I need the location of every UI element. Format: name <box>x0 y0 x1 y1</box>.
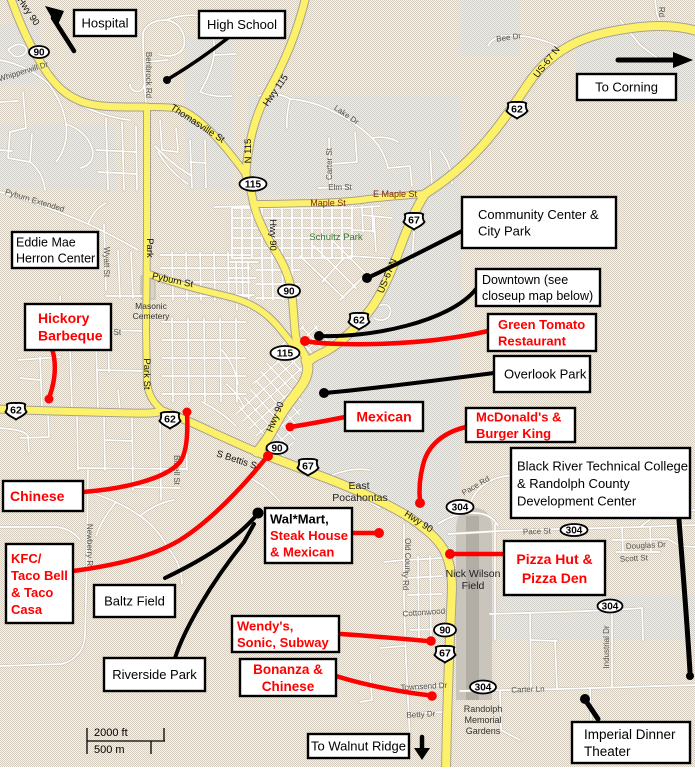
svg-text:67: 67 <box>439 647 451 659</box>
svg-text:E Maple St: E Maple St <box>373 189 418 199</box>
svg-text:Memorial: Memorial <box>464 715 501 725</box>
svg-text:67: 67 <box>408 214 420 226</box>
svg-text:Carter Ln: Carter Ln <box>511 684 545 694</box>
svg-text:Randolph: Randolph <box>464 704 503 714</box>
svg-text:Wyatt St: Wyatt St <box>102 247 111 278</box>
svg-text:& Mexican: & Mexican <box>270 545 334 560</box>
svg-text:Hickory: Hickory <box>38 310 90 326</box>
svg-text:62: 62 <box>164 413 176 425</box>
svg-text:KFC/: KFC/ <box>11 551 42 566</box>
svg-text:Steak House: Steak House <box>270 528 348 543</box>
svg-text:Scott St: Scott St <box>620 553 649 563</box>
svg-text:Benbrock Rd: Benbrock Rd <box>144 52 153 98</box>
svg-text:62: 62 <box>353 314 365 326</box>
svg-text:Barbeque: Barbeque <box>38 328 103 344</box>
svg-text:2000 ft: 2000 ft <box>94 727 128 739</box>
svg-text:N 115: N 115 <box>243 139 254 164</box>
svg-text:Industrial Dr: Industrial Dr <box>602 625 611 668</box>
svg-text:McDonald's &: McDonald's & <box>476 409 561 424</box>
svg-text:115: 115 <box>277 349 294 360</box>
svg-text:304: 304 <box>475 683 492 694</box>
svg-text:ty Rd: ty Rd <box>401 572 410 591</box>
svg-text:Eddie Mae: Eddie Mae <box>16 236 76 250</box>
svg-text:Rd: Rd <box>657 7 666 17</box>
svg-text:& Taco: & Taco <box>11 585 53 600</box>
svg-text:Park: Park <box>144 238 155 258</box>
svg-text:Hwy 90: Hwy 90 <box>267 219 278 251</box>
svg-text:500 m: 500 m <box>94 744 125 756</box>
svg-text:Chinese: Chinese <box>262 679 315 694</box>
svg-text:Pocahontas: Pocahontas <box>332 492 387 504</box>
svg-text:Restaurant: Restaurant <box>498 333 567 348</box>
svg-text:Maple St: Maple St <box>310 198 346 208</box>
svg-text:67: 67 <box>302 460 314 472</box>
svg-text:Elm St: Elm St <box>328 183 352 192</box>
svg-text:Hospital: Hospital <box>82 16 129 31</box>
svg-text:Nick Wilson: Nick Wilson <box>446 568 501 580</box>
svg-text:City Park: City Park <box>478 223 531 238</box>
svg-text:Imperial Dinner: Imperial Dinner <box>584 727 676 742</box>
svg-text:62: 62 <box>511 103 523 115</box>
svg-text:Pizza Den: Pizza Den <box>522 570 587 586</box>
svg-text:Riverside Park: Riverside Park <box>112 667 197 682</box>
svg-text:Betty Dr: Betty Dr <box>406 709 436 720</box>
svg-text:Old Coun: Old Coun <box>403 538 412 572</box>
svg-text:Newberry R: Newberry R <box>85 524 94 566</box>
svg-text:90: 90 <box>33 48 45 59</box>
svg-text:Pace St: Pace St <box>523 526 552 536</box>
svg-text:Black River Technical College: Black River Technical College <box>517 458 688 473</box>
svg-text:Herron Center: Herron Center <box>16 252 95 266</box>
svg-text:Cemetery: Cemetery <box>133 311 171 321</box>
svg-text:304: 304 <box>602 602 619 613</box>
svg-text:Field: Field <box>462 580 485 592</box>
svg-text:62: 62 <box>10 404 22 416</box>
svg-text:Theater: Theater <box>584 744 631 759</box>
svg-text:Bonanza &: Bonanza & <box>253 662 323 677</box>
svg-text:closeup map below): closeup map below) <box>482 289 593 303</box>
svg-text:Masonic: Masonic <box>135 301 167 311</box>
svg-text:East: East <box>348 480 369 492</box>
svg-text:Taco Bell: Taco Bell <box>11 568 68 583</box>
svg-text:Sonic, Subway: Sonic, Subway <box>237 635 330 650</box>
svg-text:Gardens: Gardens <box>466 726 501 736</box>
svg-text:Schultz Park: Schultz Park <box>309 232 363 243</box>
svg-text:Community Center &: Community Center & <box>478 207 599 222</box>
svg-text:Carter St: Carter St <box>325 147 334 180</box>
svg-text:Burger King: Burger King <box>476 426 551 441</box>
svg-text:90: 90 <box>283 287 295 298</box>
svg-text:Casa: Casa <box>11 602 43 617</box>
svg-text:Development Center: Development Center <box>517 493 637 508</box>
svg-text:Green Tomato: Green Tomato <box>498 317 585 332</box>
svg-text:90: 90 <box>439 626 451 637</box>
svg-text:115: 115 <box>245 180 262 191</box>
svg-text:304: 304 <box>566 526 583 537</box>
svg-text:Downtown (see: Downtown (see <box>482 273 568 287</box>
svg-text:Chinese: Chinese <box>10 488 65 504</box>
svg-text:Overlook Park: Overlook Park <box>504 367 587 382</box>
svg-text:Baltz Field: Baltz Field <box>104 594 165 609</box>
svg-text:Park St: Park St <box>141 358 152 390</box>
svg-text:To Corning: To Corning <box>595 80 658 95</box>
svg-text:Wal*Mart,: Wal*Mart, <box>270 512 329 527</box>
svg-text:304: 304 <box>452 503 469 514</box>
svg-text:& Randolph County: & Randolph County <box>517 476 630 491</box>
svg-text:90: 90 <box>271 444 283 455</box>
svg-text:High School: High School <box>207 17 277 32</box>
svg-text:Pizza Hut &: Pizza Hut & <box>516 551 592 567</box>
svg-text:Wendy's,: Wendy's, <box>237 618 293 633</box>
svg-text:To Walnut Ridge: To Walnut Ridge <box>311 739 406 754</box>
svg-text:Mexican: Mexican <box>356 408 411 424</box>
